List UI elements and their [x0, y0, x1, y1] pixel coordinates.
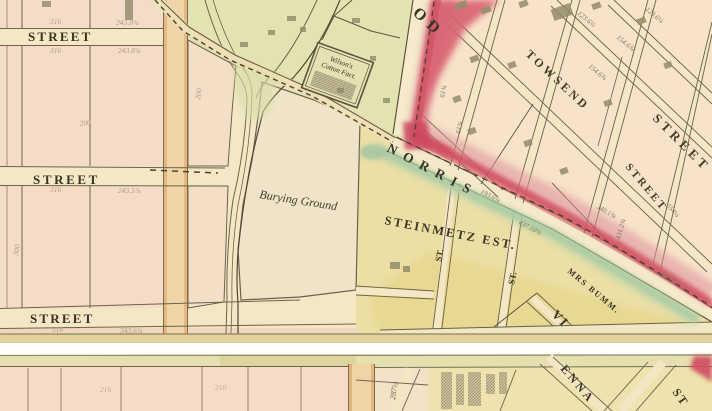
svg-text:216: 216: [100, 385, 112, 394]
svg-text:210: 210: [215, 383, 227, 392]
svg-text:STREET: STREET: [30, 311, 95, 326]
svg-text:316: 316: [49, 17, 62, 26]
svg-text:343.6¾: 343.6¾: [119, 326, 143, 335]
svg-text:316: 316: [49, 46, 62, 55]
svg-text:243.8¾: 243.8¾: [116, 18, 139, 27]
svg-text:200: 200: [79, 117, 92, 128]
svg-text:STREET: STREET: [28, 29, 93, 44]
svg-text:243.8¾: 243.8¾: [118, 46, 141, 55]
svg-text:243.5¾: 243.5¾: [118, 186, 141, 195]
svg-text:316: 316: [49, 185, 62, 194]
svg-text:316: 316: [51, 325, 64, 334]
svg-text:STREET: STREET: [33, 172, 100, 187]
